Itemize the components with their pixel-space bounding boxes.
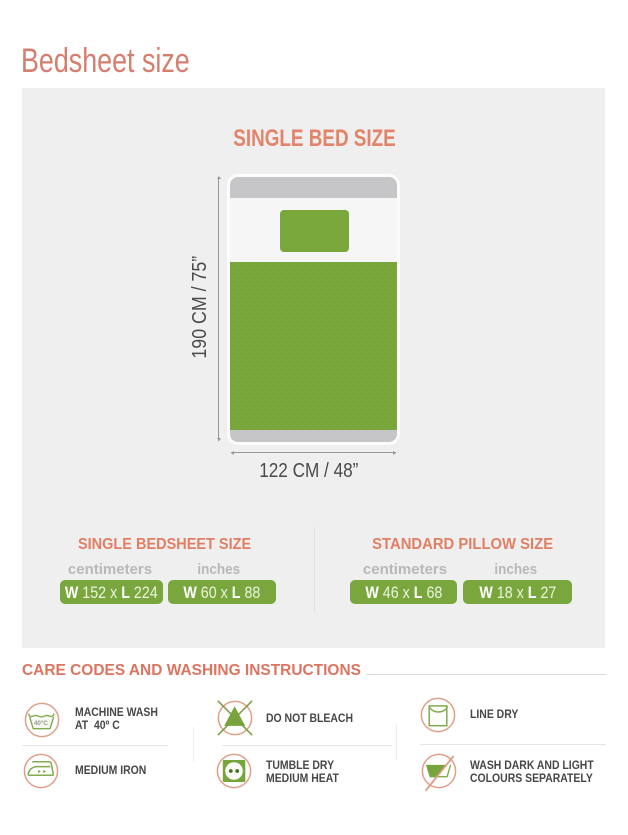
svg-text:40°C: 40°C — [34, 720, 48, 727]
